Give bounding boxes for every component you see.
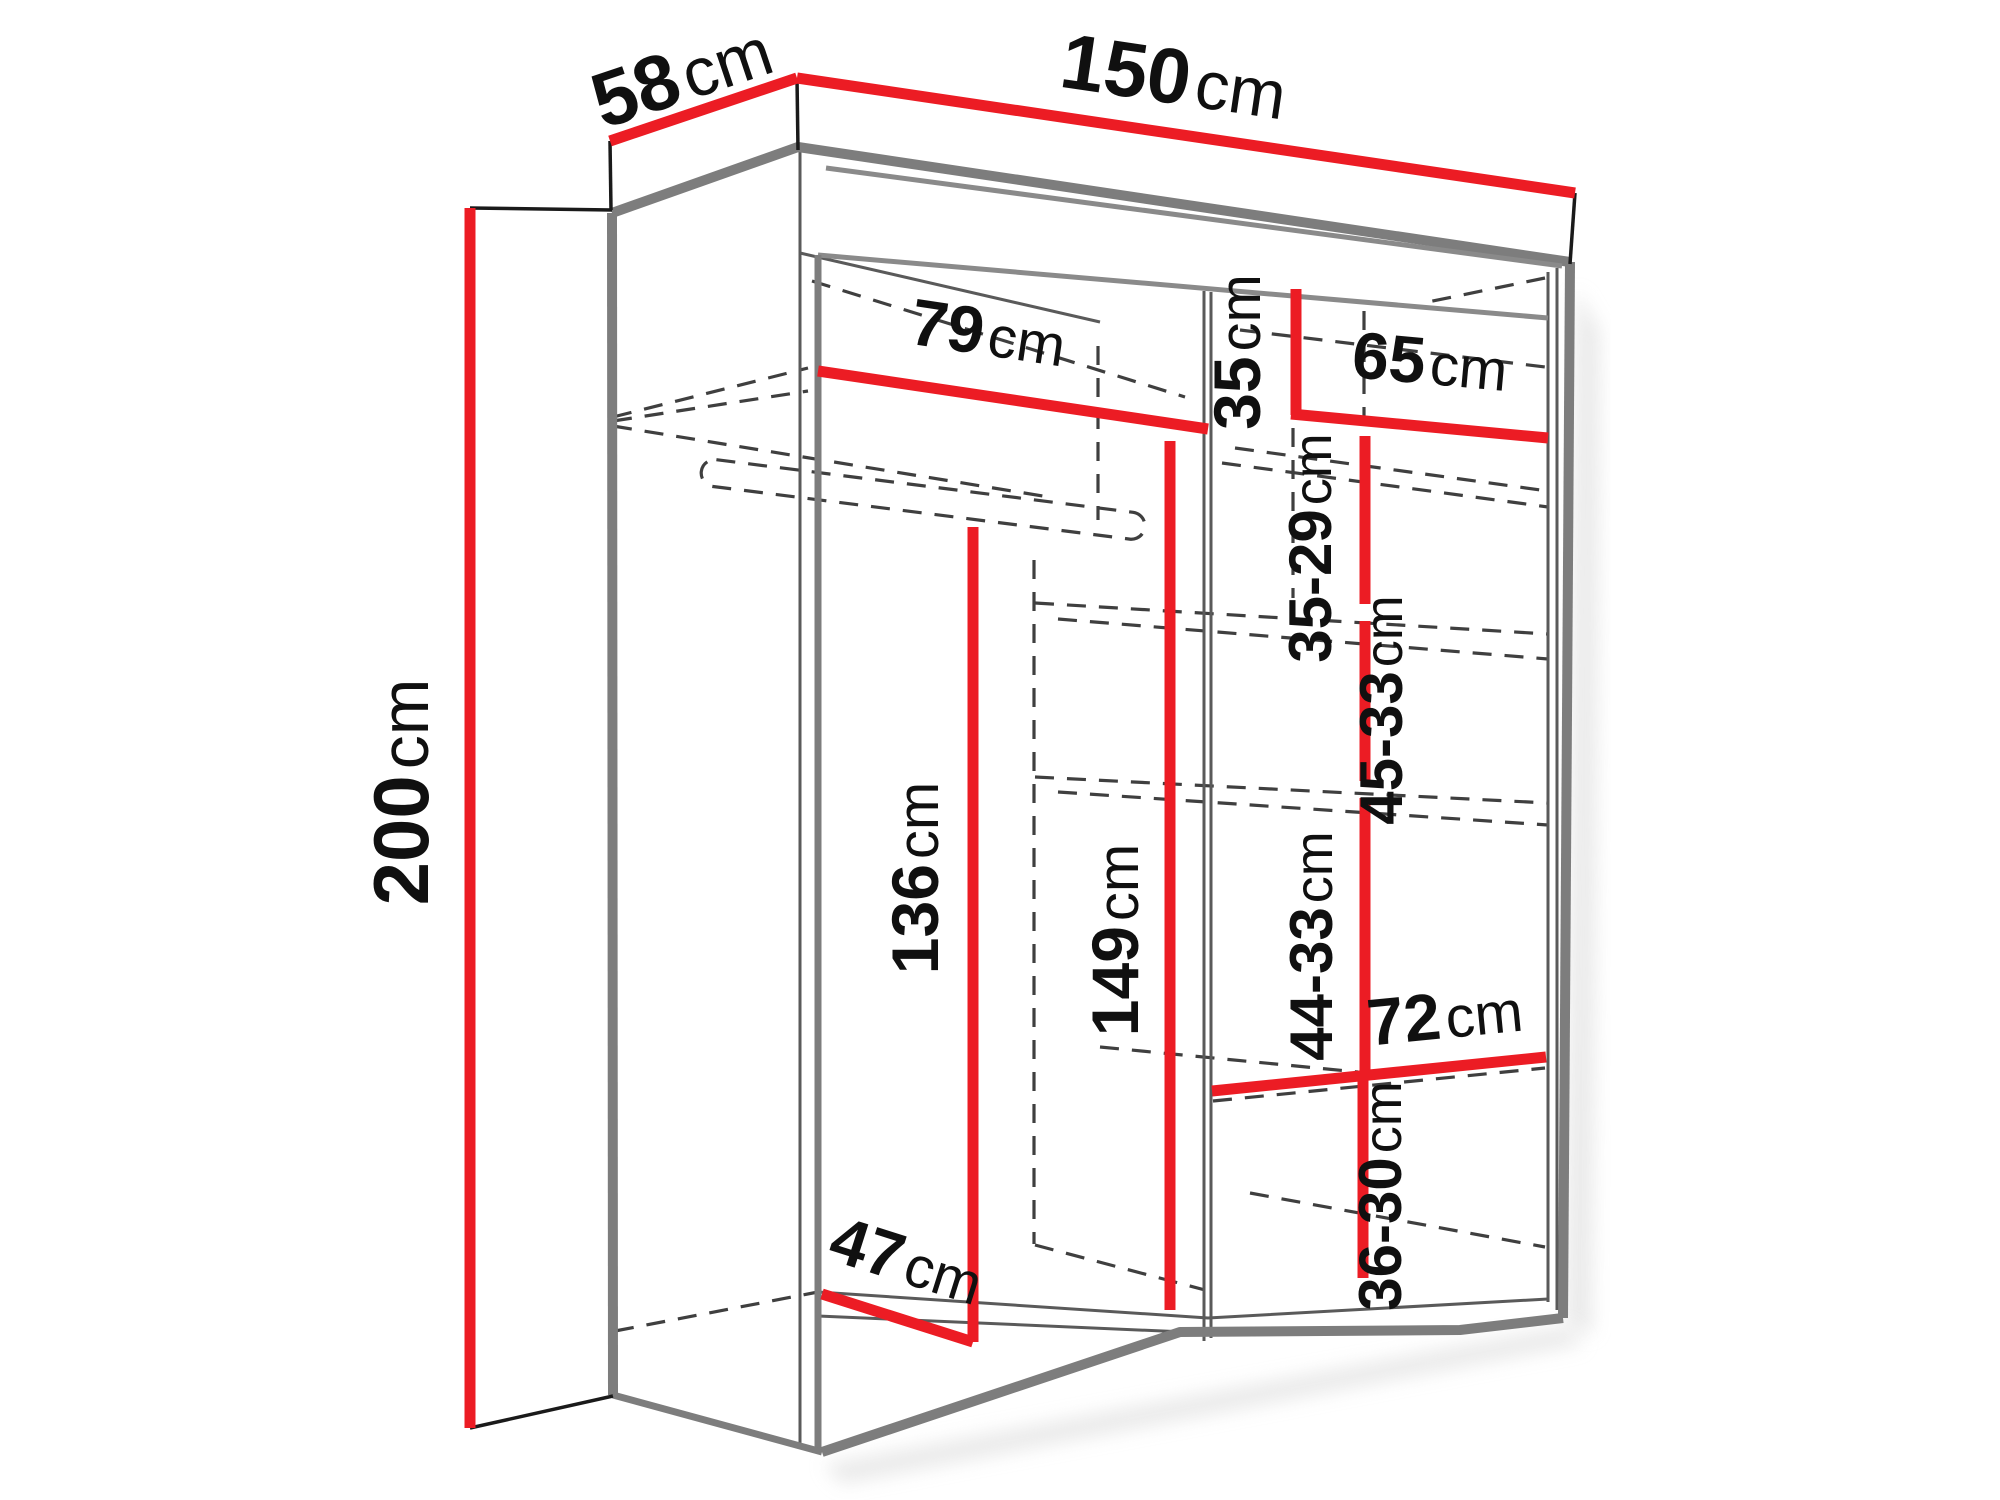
cabinet-shadow-bottom bbox=[824, 1326, 1584, 1484]
tick-apex bbox=[797, 78, 798, 150]
hidden-edge-left-fan-1 bbox=[613, 368, 808, 417]
dimension-labels: 58cm 150cm 200cm 79cm 35cm 65cm 35-29cm … bbox=[357, 3, 1526, 1318]
right-panel-outer-edge bbox=[1563, 262, 1570, 1318]
diagram-canvas: 58cm 150cm 200cm 79cm 35cm 65cm 35-29cm … bbox=[0, 0, 2000, 1500]
hidden-edge-back-top-right bbox=[1428, 278, 1545, 302]
dim-label-shelf-65: 65cm bbox=[1349, 317, 1511, 405]
dim-label-gap-36-30: 36-30cm bbox=[1347, 1081, 1414, 1310]
tick-150-right bbox=[1570, 193, 1575, 264]
left-panel-bottom-edge bbox=[613, 1395, 822, 1452]
tick-200-bottom bbox=[470, 1396, 613, 1428]
tick-58-left bbox=[610, 141, 611, 210]
hidden-shelf-3a bbox=[1035, 777, 1548, 803]
dim-label-gap-35-29: 35-29cm bbox=[1277, 433, 1344, 662]
dim-label-shelf-72: 72cm bbox=[1364, 971, 1526, 1060]
tick-200-top bbox=[470, 208, 612, 210]
hidden-edge-left-fan-2 bbox=[613, 391, 808, 421]
dim-label-height-149: 149cm bbox=[1078, 844, 1152, 1036]
dim-line-shelf-79 bbox=[818, 371, 1208, 429]
hanging-rod bbox=[700, 458, 1147, 541]
dim-label-shelf-79: 79cm bbox=[906, 284, 1071, 380]
wardrobe-dimension-diagram: 58cm 150cm 200cm 79cm 35cm 65cm 35-29cm … bbox=[0, 0, 2000, 1500]
dim-label-gap-45-33: 45-33cm bbox=[1348, 595, 1415, 824]
dim-label-height-200: 200cm bbox=[357, 679, 445, 906]
crown-lower-line bbox=[826, 168, 1562, 266]
cabinet-bottom-front-edge bbox=[822, 1318, 1563, 1452]
cabinet-top-left-edge bbox=[612, 147, 798, 213]
left-panel-front-edge bbox=[612, 213, 613, 1395]
hidden-floor-left bbox=[1035, 1245, 1205, 1290]
dim-label-gap-44-33: 44-33cm bbox=[1278, 831, 1345, 1060]
floor-front-line-b bbox=[818, 1316, 1208, 1333]
hidden-floor-back-left bbox=[615, 1292, 818, 1331]
dim-label-height-136: 136cm bbox=[878, 782, 952, 974]
hidden-shelf-3b bbox=[1058, 792, 1548, 825]
hidden-edge-left-fan-3 bbox=[613, 426, 1055, 498]
cabinet-top-front-edge bbox=[798, 147, 1570, 262]
dim-label-depth-58: 58cm bbox=[580, 3, 782, 145]
dim-label-gap-35: 35cm bbox=[1200, 274, 1274, 430]
